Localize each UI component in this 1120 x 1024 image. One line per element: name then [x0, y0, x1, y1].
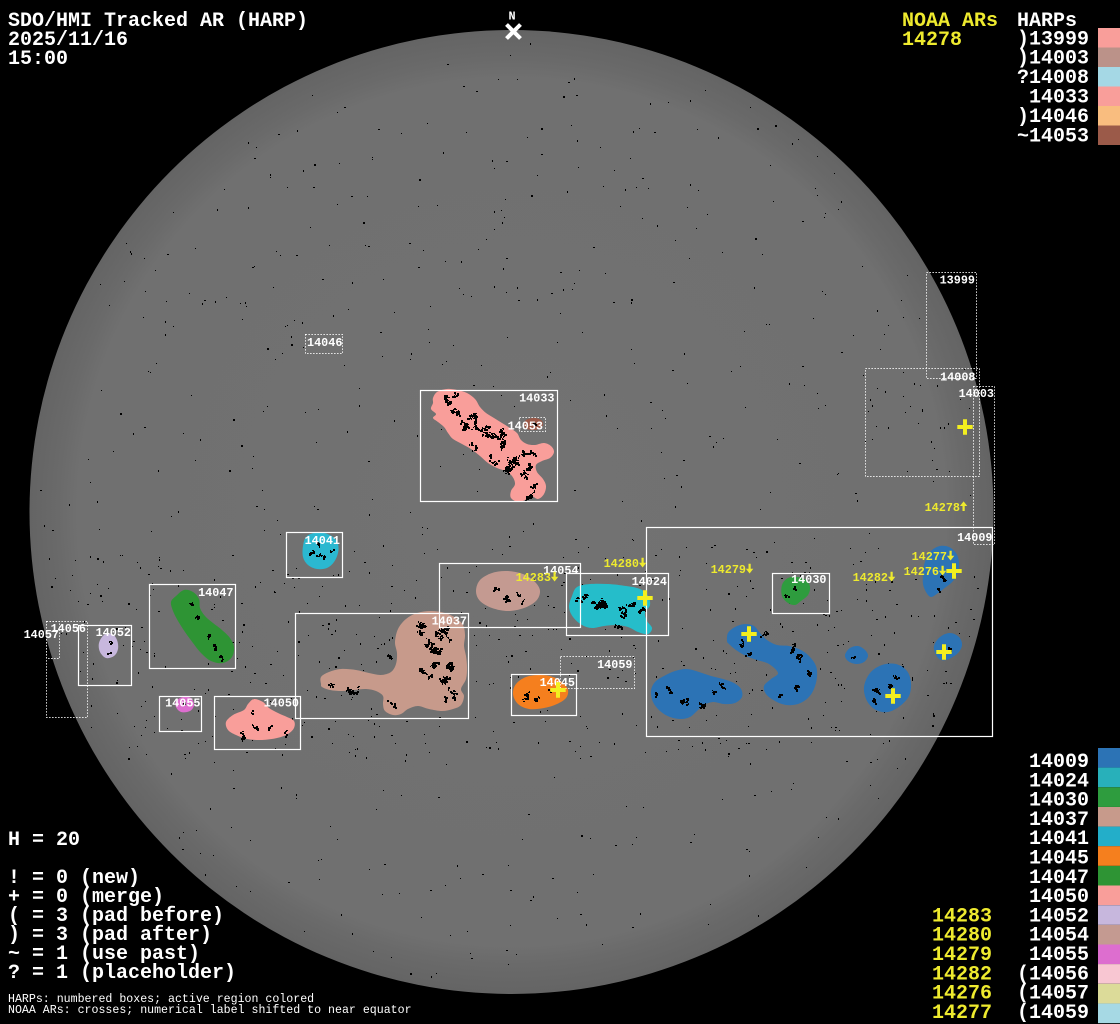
svg-text:14053: 14053 — [508, 420, 543, 434]
svg-text:14283: 14283 — [516, 571, 551, 585]
svg-text:N: N — [508, 10, 515, 24]
svg-text:14033: 14033 — [519, 392, 554, 406]
svg-text:14030: 14030 — [791, 573, 826, 587]
svg-text:H = 20: H = 20 — [8, 829, 80, 852]
svg-text:14024: 14024 — [632, 575, 667, 589]
svg-text:14278: 14278 — [902, 29, 962, 52]
svg-text:14056: 14056 — [51, 622, 86, 636]
svg-text:14278: 14278 — [925, 501, 960, 515]
svg-text:? = 1 (placeholder): ? = 1 (placeholder) — [8, 962, 236, 985]
svg-text:14003: 14003 — [959, 387, 994, 401]
svg-text:(14059: (14059 — [1017, 1002, 1089, 1024]
svg-text:NOAA ARs: crosses; numerical l: NOAA ARs: crosses; numerical label shift… — [8, 1004, 412, 1017]
svg-text:14277: 14277 — [912, 550, 947, 564]
svg-text:14055: 14055 — [165, 697, 200, 711]
svg-text:13999: 13999 — [940, 274, 975, 288]
svg-text:14280: 14280 — [604, 557, 639, 571]
svg-text:14052: 14052 — [96, 626, 131, 640]
svg-text:14009: 14009 — [957, 531, 992, 545]
svg-text:14046: 14046 — [307, 336, 342, 350]
svg-text:14059: 14059 — [597, 658, 632, 672]
svg-text:15:00: 15:00 — [8, 48, 68, 71]
svg-text:14008: 14008 — [940, 371, 975, 385]
svg-text:14282: 14282 — [853, 571, 888, 585]
svg-text:14050: 14050 — [264, 697, 299, 711]
svg-text:14041: 14041 — [305, 534, 340, 548]
svg-text:14047: 14047 — [198, 586, 233, 600]
svg-text:14037: 14037 — [432, 615, 467, 629]
svg-text:14276: 14276 — [904, 565, 939, 579]
svg-text:14279: 14279 — [711, 563, 746, 577]
svg-text:~14053: ~14053 — [1017, 125, 1089, 148]
svg-text:14277: 14277 — [932, 1002, 992, 1024]
